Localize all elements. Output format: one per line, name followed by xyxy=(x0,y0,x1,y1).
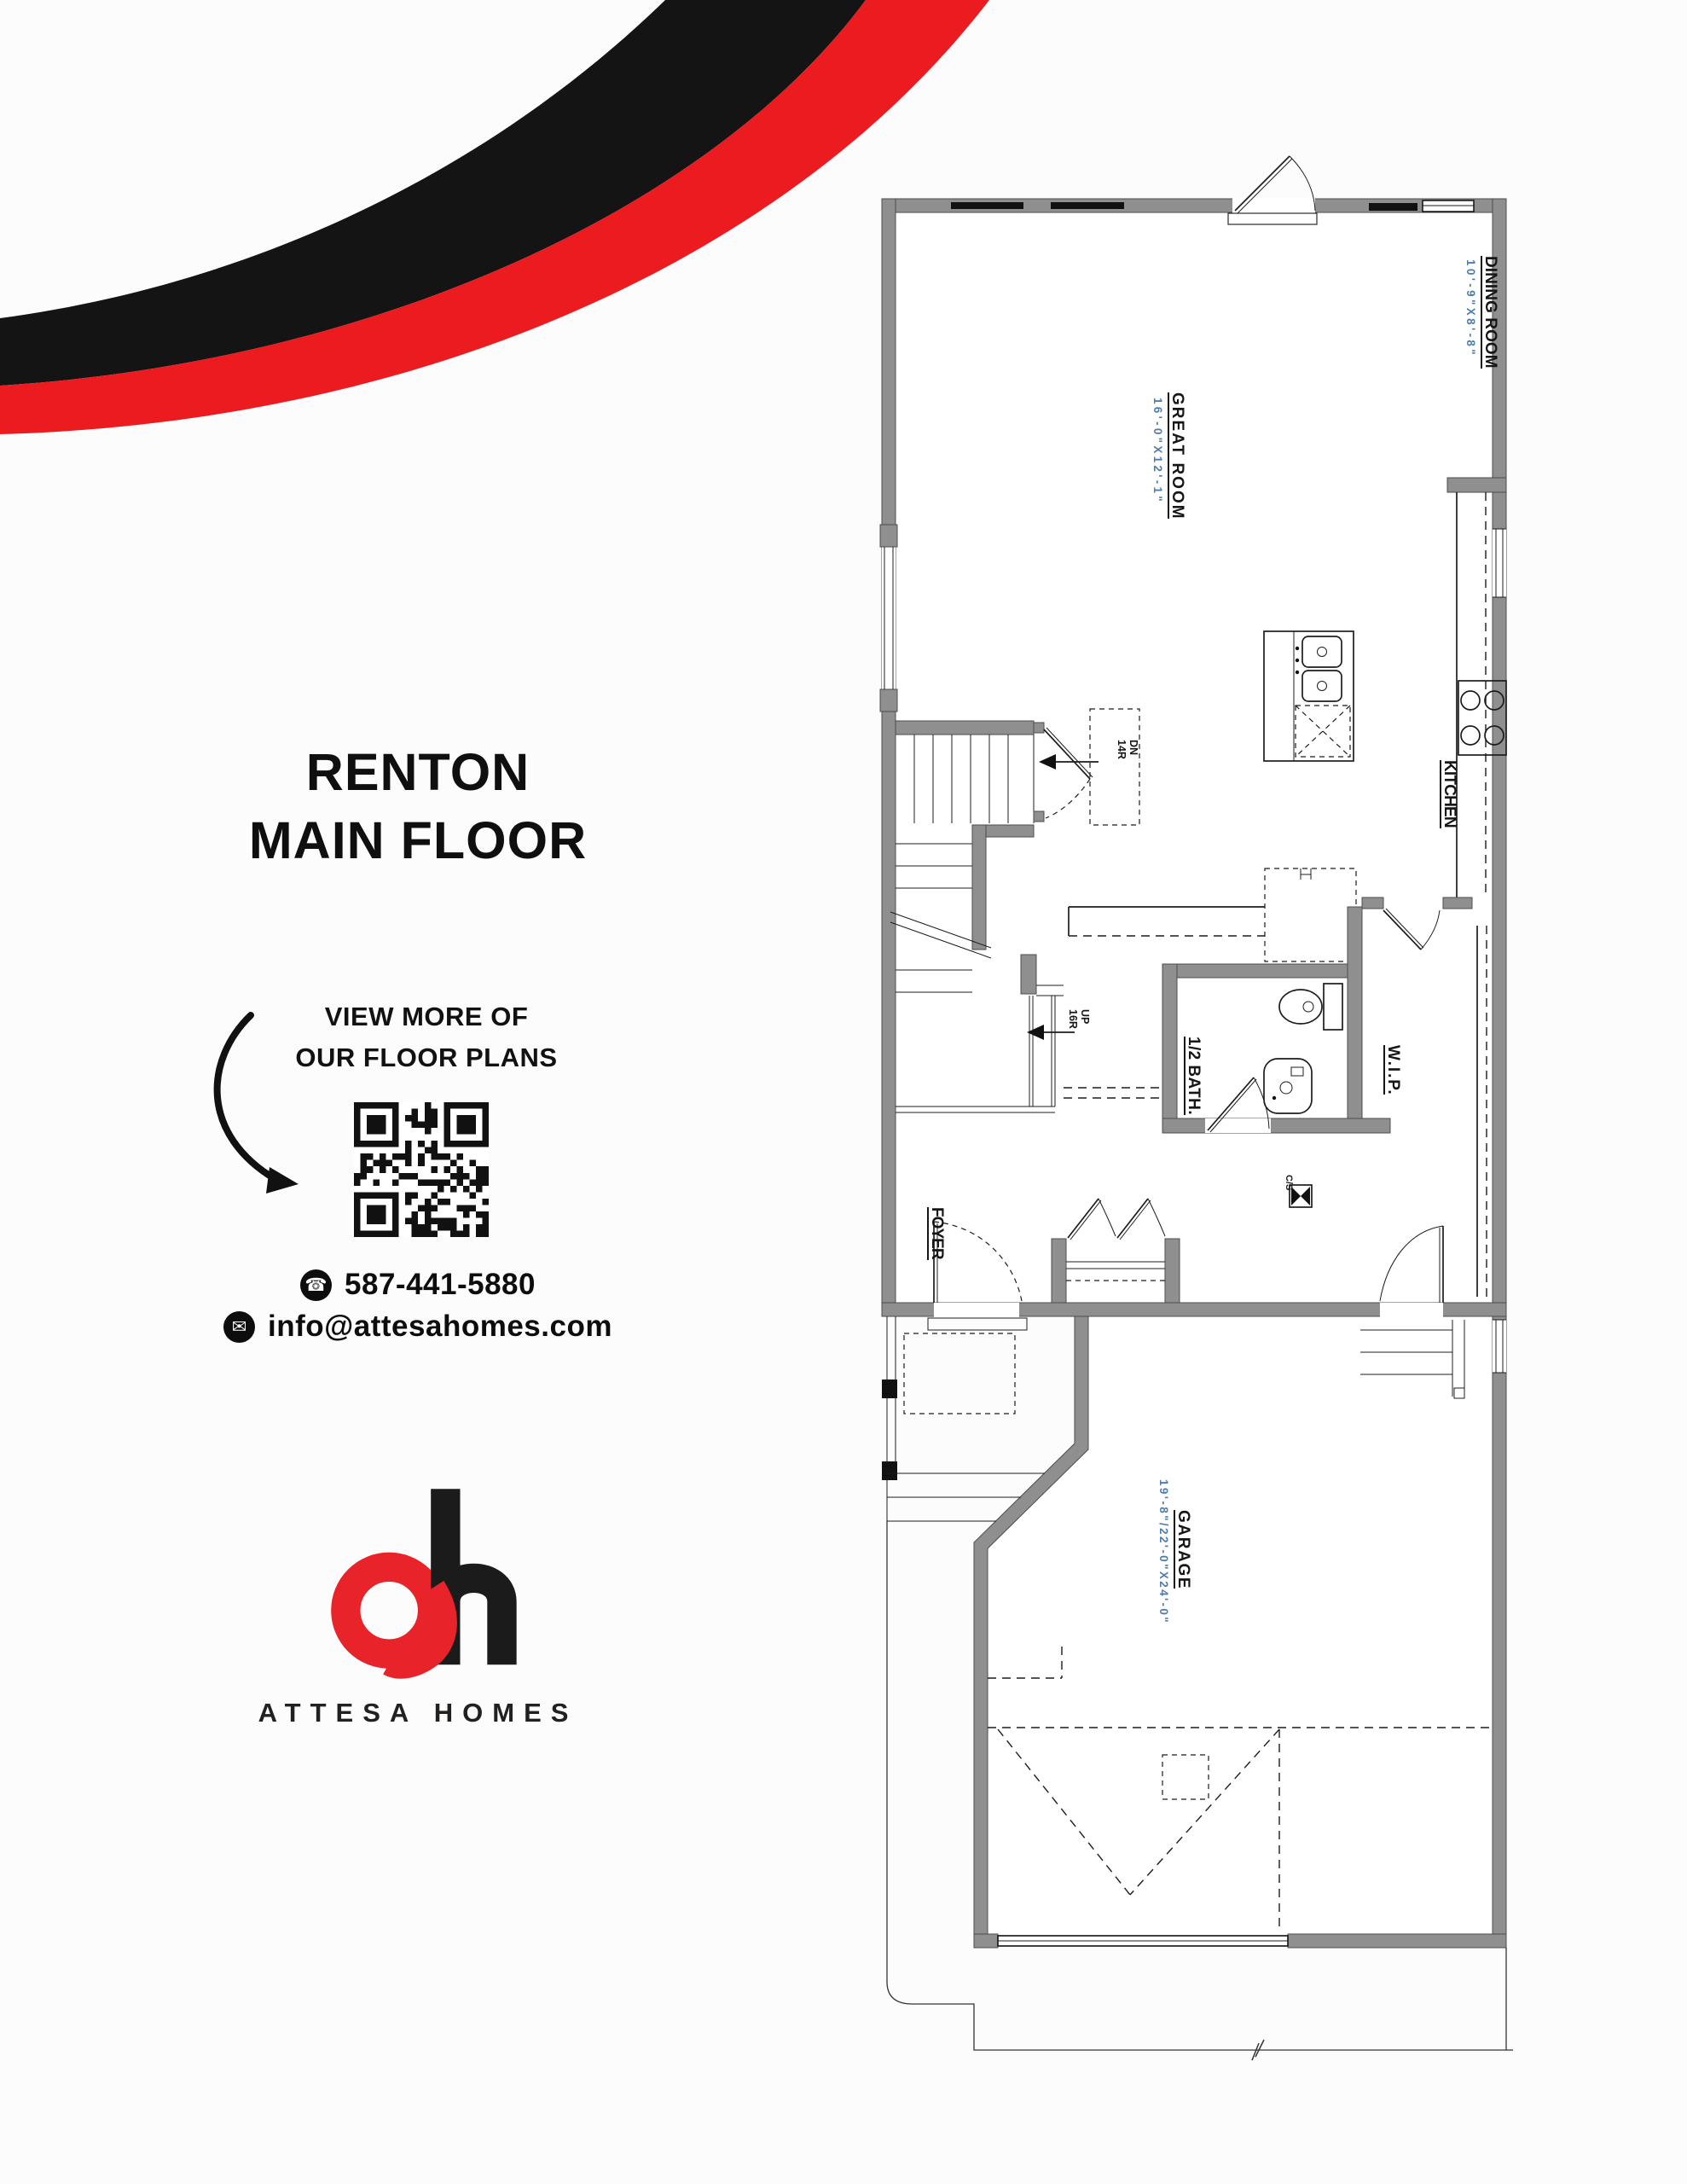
phone-row: ☎ 587-441-5880 xyxy=(300,1268,536,1302)
svg-text:C/S: C/S xyxy=(1284,1175,1294,1190)
room-label-wip: W.I.P. xyxy=(1384,1045,1402,1095)
garage-side-window xyxy=(1493,1320,1506,1373)
contact-block: ☎ 587-441-5880 ✉ info@attesahomes.com xyxy=(119,1268,716,1344)
email-address: info@attesahomes.com xyxy=(268,1310,612,1344)
room-label-half-bath: 1/2 BATH. xyxy=(1185,1037,1203,1115)
attesa-homes-logo xyxy=(300,1476,556,1687)
window-bar xyxy=(1369,203,1417,211)
svg-text:16R: 16R xyxy=(1067,1009,1079,1029)
page-title-line2: MAIN FLOOR xyxy=(119,807,716,875)
logo-letter-a xyxy=(345,1567,432,1654)
great-room-window xyxy=(880,525,897,712)
svg-text:FOYER: FOYER xyxy=(928,1207,946,1260)
brand-name: ATTESA HOMES xyxy=(119,1698,716,1728)
page-title: RENTON MAIN FLOOR xyxy=(119,739,716,875)
email-row: ✉ info@attesahomes.com xyxy=(223,1310,612,1344)
svg-text:DINING ROOM: DINING ROOM xyxy=(1481,256,1499,369)
svg-text:UP: UP xyxy=(1079,1009,1091,1024)
svg-text:KITCHEN: KITCHEN xyxy=(1441,760,1458,828)
svg-text:DN: DN xyxy=(1128,740,1139,755)
side-window xyxy=(1493,529,1506,597)
svg-text:14R: 14R xyxy=(1116,740,1128,759)
page-title-line1: RENTON xyxy=(119,739,716,807)
svg-text:1/2 BATH.: 1/2 BATH. xyxy=(1185,1037,1203,1115)
svg-text:10'-9"X8'-8": 10'-9"X8'-8" xyxy=(1464,259,1477,355)
qr-code xyxy=(354,1102,489,1237)
phone-icon: ☎ xyxy=(300,1269,332,1301)
room-label-foyer: FOYER xyxy=(928,1207,946,1260)
email-icon: ✉ xyxy=(223,1311,255,1343)
door-threshold xyxy=(1228,213,1317,224)
floor-plan: DN 14R UP 16 xyxy=(870,192,1518,2103)
curved-arrow-icon xyxy=(198,1007,364,1207)
window-bar xyxy=(1051,202,1124,209)
dining-kitchen-divider xyxy=(1447,478,1506,492)
window-bar xyxy=(951,202,1023,209)
room-label-kitchen: KITCHEN xyxy=(1441,760,1458,828)
room-label-dining: DINING ROOM 10'-9"X8'-8" xyxy=(1464,256,1499,369)
phone-number: 587-441-5880 xyxy=(345,1268,536,1302)
front-porch xyxy=(882,1316,1045,1521)
svg-text:W.I.P.: W.I.P. xyxy=(1384,1045,1402,1095)
svg-text:16'-0"X12'-1": 16'-0"X12'-1" xyxy=(1151,398,1164,502)
garage-door xyxy=(998,1936,1288,1946)
